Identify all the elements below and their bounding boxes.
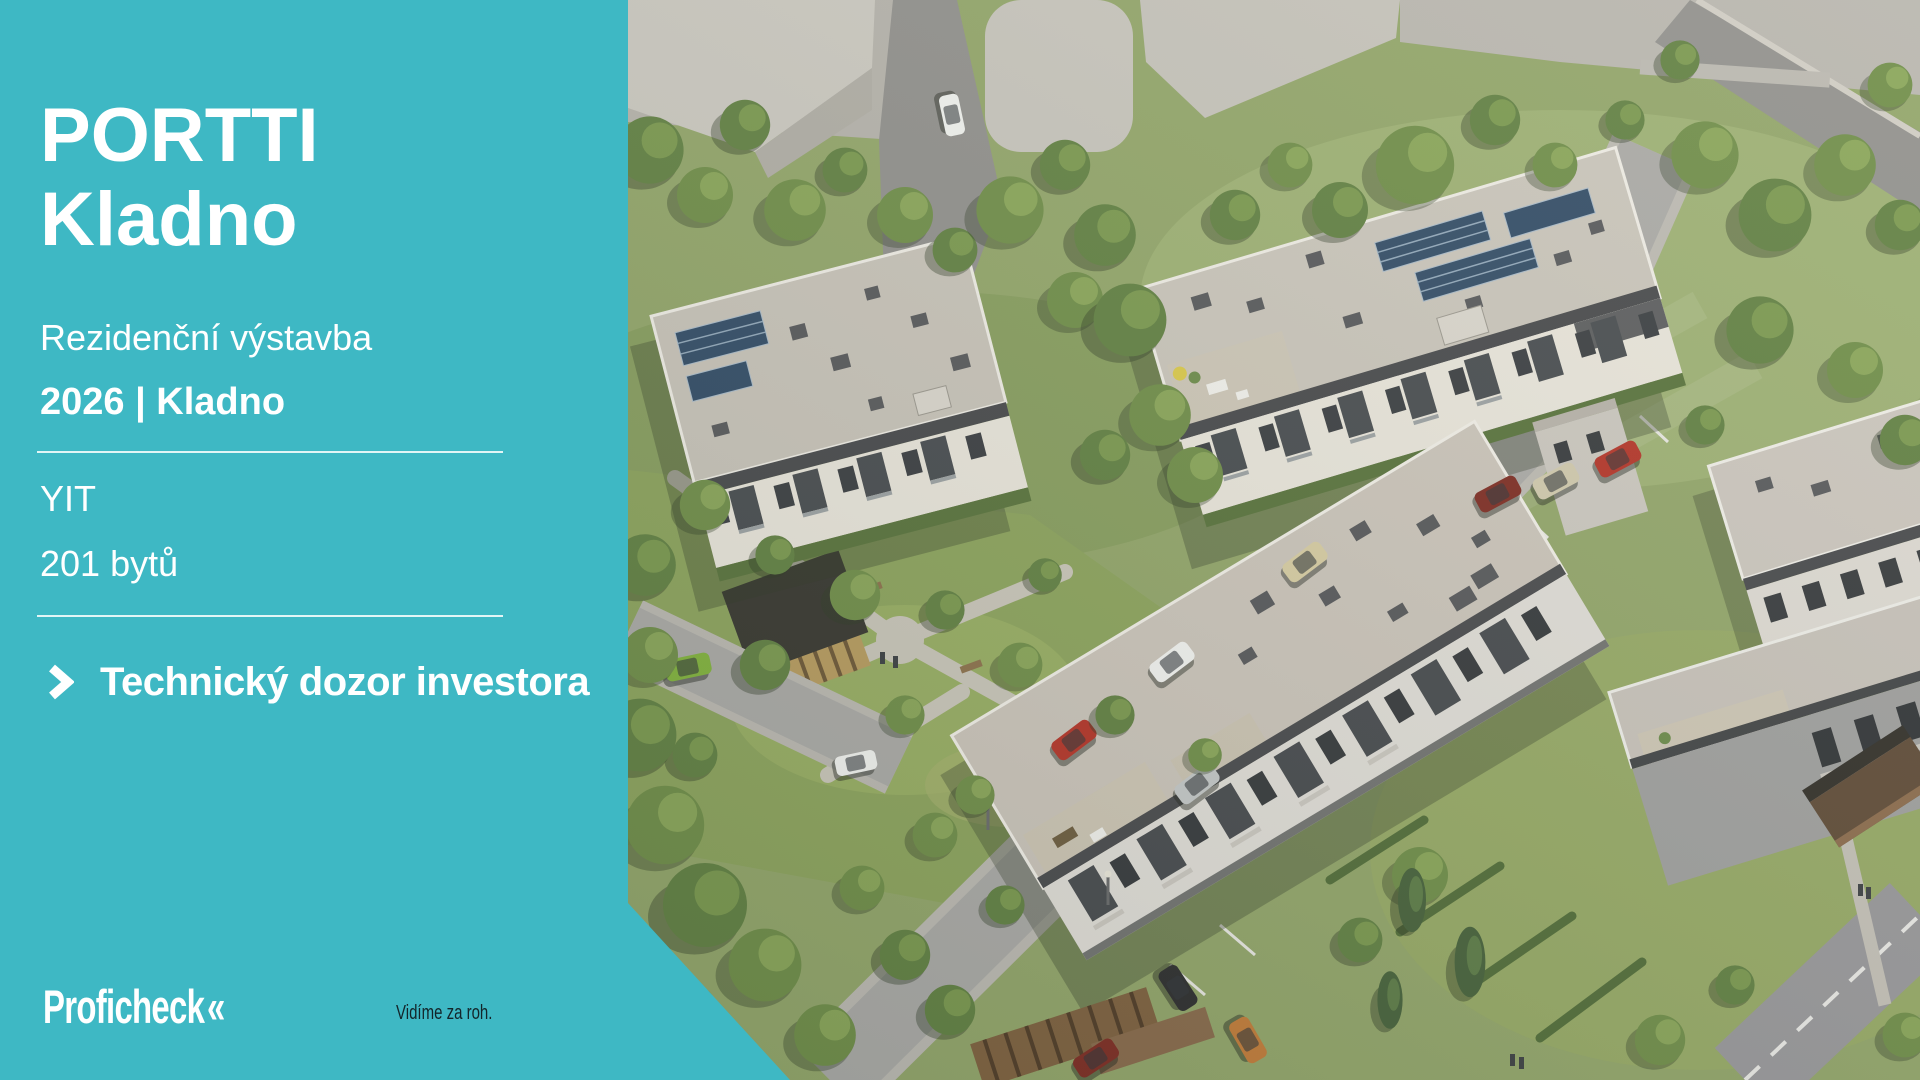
divider-top [37,451,503,453]
units-count: 201 bytů [40,543,178,585]
double-chevron-left-icon: « [207,979,225,1034]
title-line-2: Kladno [40,178,319,262]
service-row: Technický dozor investora [48,658,589,706]
chevron-right-icon [48,664,74,700]
developer-name: YIT [40,478,96,520]
slide: PORTTI Kladno Rezidenční výstavba 2026 |… [0,0,1920,1080]
project-subtitle: Rezidenční výstavba [40,317,372,359]
brand-tagline: Vidíme za roh. [396,1002,492,1025]
year-location: 2026 | Kladno [40,381,285,424]
service-label: Technický dozor investora [100,660,589,705]
page-title: PORTTI Kladno [40,94,319,262]
logo-text: Proficheck [43,979,204,1034]
title-line-1: PORTTI [40,94,319,178]
divider-bottom [37,615,503,617]
proficheck-logo: Proficheck « [43,979,225,1034]
